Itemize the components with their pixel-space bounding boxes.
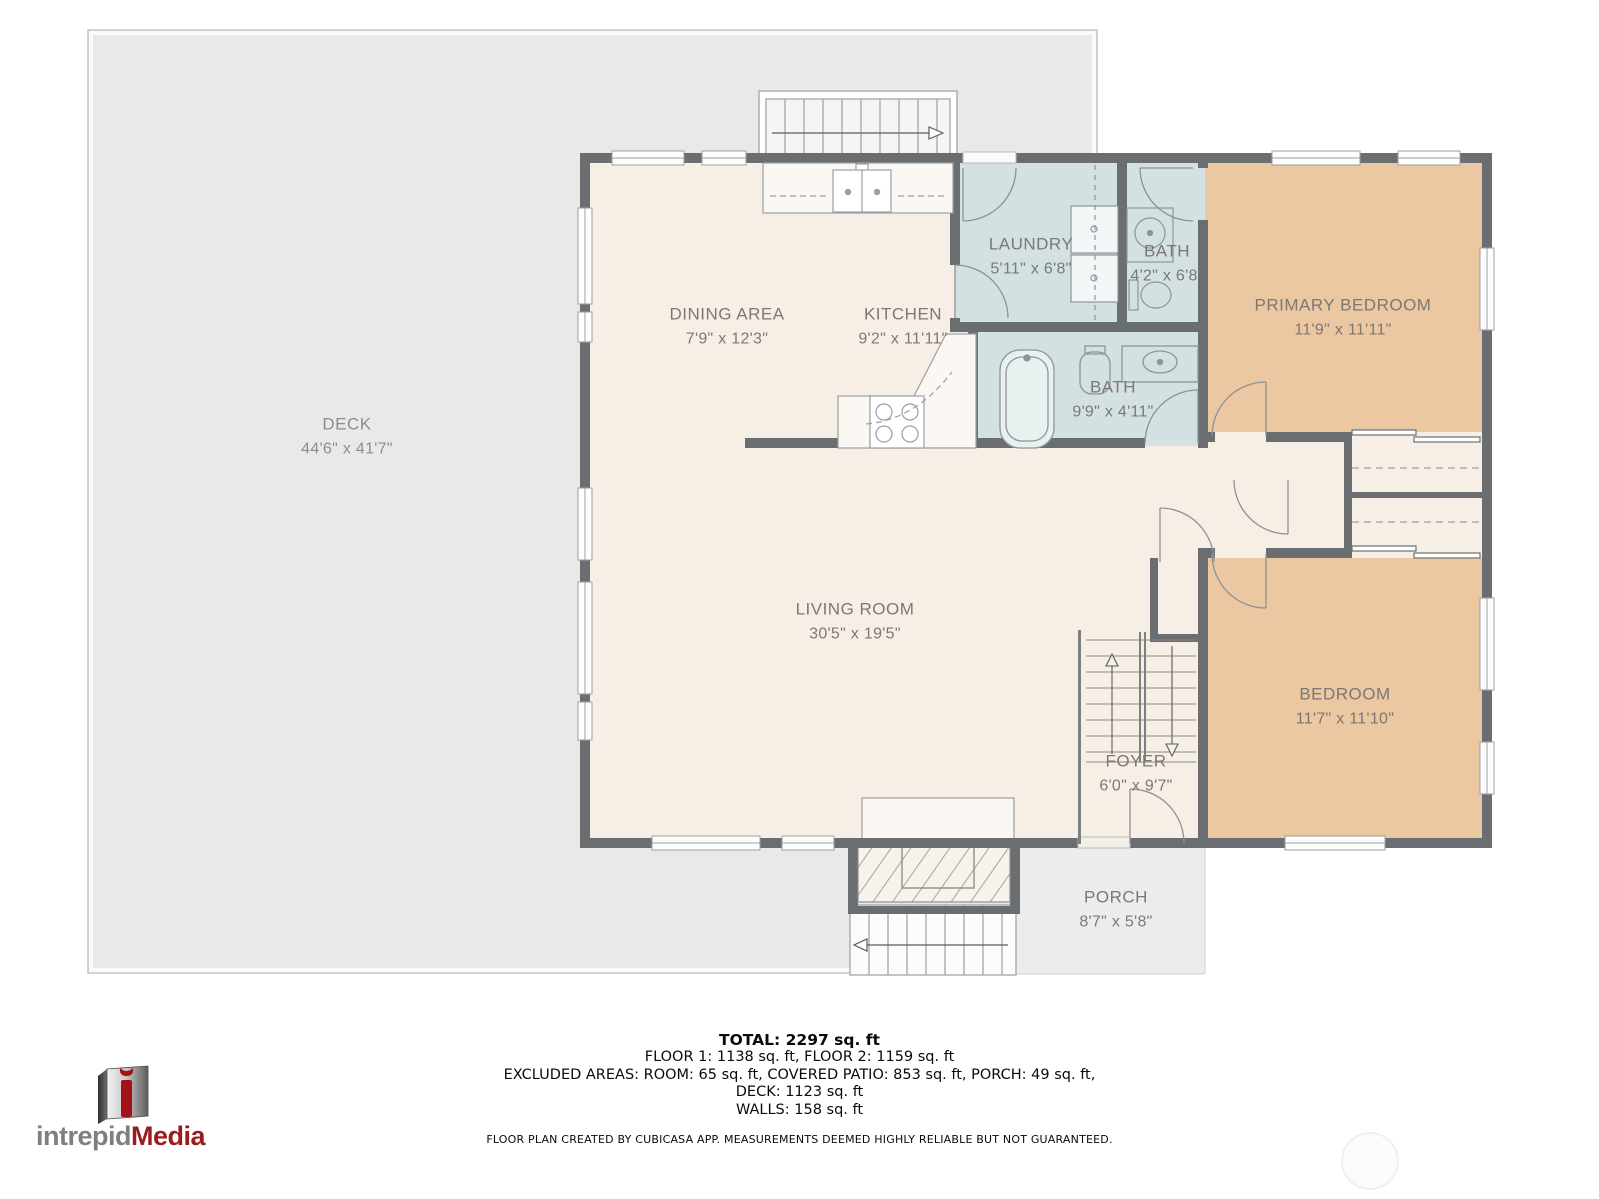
room-label-laundry: LAUNDRY 5'11" x 6'8" (989, 231, 1073, 281)
room-dims: 30'5" x 19'5" (796, 622, 915, 646)
total-area-text: TOTAL: 2297 sq. ft (0, 1031, 1599, 1049)
stairs-top (759, 91, 957, 161)
room-name: BEDROOM (1299, 684, 1390, 703)
stairs-bottom (850, 905, 1016, 975)
room-dims: 7'9" x 12'3" (669, 327, 784, 351)
room-dims: 11'9" x 11'11" (1255, 318, 1432, 342)
room-dims: 8'7" x 5'8" (1079, 910, 1152, 934)
room-label-bedroom: BEDROOM 11'7" x 11'10" (1296, 681, 1394, 731)
room-label-bath-main: BATH 9'9" x 4'11" (1072, 374, 1153, 424)
room-name: DINING AREA (669, 304, 784, 323)
logo-cube-icon (94, 1060, 152, 1124)
room-label-porch: PORCH 8'7" x 5'8" (1079, 884, 1152, 934)
room-dims: 4'2" x 6'8" (1130, 264, 1203, 288)
floor-plan-page: DECK 44'6" x 41'7" DINING AREA 7'9" x 12… (0, 0, 1599, 1199)
room-name: FOYER (1105, 751, 1166, 770)
logo-text-red: Media (131, 1121, 205, 1151)
room-label-bath-upper: BATH 4'2" x 6'8" (1130, 238, 1203, 288)
room-label-primary-bedroom: PRIMARY BEDROOM 11'9" x 11'11" (1255, 292, 1432, 342)
room-name: LIVING ROOM (796, 599, 915, 618)
room-label-dining-area: DINING AREA 7'9" x 12'3" (669, 301, 784, 351)
logo-text: intrepidMedia (36, 1121, 266, 1152)
room-name: LAUNDRY (989, 234, 1073, 253)
fireplace (848, 798, 1020, 914)
room-label-kitchen: KITCHEN 9'2" x 11'11" (858, 301, 947, 351)
room-name: PRIMARY BEDROOM (1255, 295, 1432, 314)
logo-text-gray: intrepid (36, 1121, 131, 1151)
room-dims: 6'0" x 9'7" (1099, 774, 1172, 798)
room-dims: 5'11" x 6'8" (989, 257, 1073, 281)
room-name: BATH (1144, 241, 1190, 260)
room-name: DECK (322, 414, 371, 433)
room-name: PORCH (1084, 887, 1148, 906)
room-name: BATH (1090, 377, 1136, 396)
room-dims: 9'2" x 11'11" (858, 327, 947, 351)
kitchen-sink-icon (833, 170, 891, 212)
room-label-living-room: LIVING ROOM 30'5" x 19'5" (796, 596, 915, 646)
room-dims: 11'7" x 11'10" (1296, 707, 1394, 731)
intrepid-media-logo: intrepidMedia (36, 1060, 266, 1152)
room-label-deck: DECK 44'6" x 41'7" (301, 411, 393, 461)
room-name: KITCHEN (864, 304, 942, 323)
room-dims: 9'9" x 4'11" (1072, 400, 1153, 424)
room-dims: 44'6" x 41'7" (301, 437, 393, 461)
room-label-foyer: FOYER 6'0" x 9'7" (1099, 748, 1172, 798)
bathtub-icon (1000, 350, 1054, 448)
